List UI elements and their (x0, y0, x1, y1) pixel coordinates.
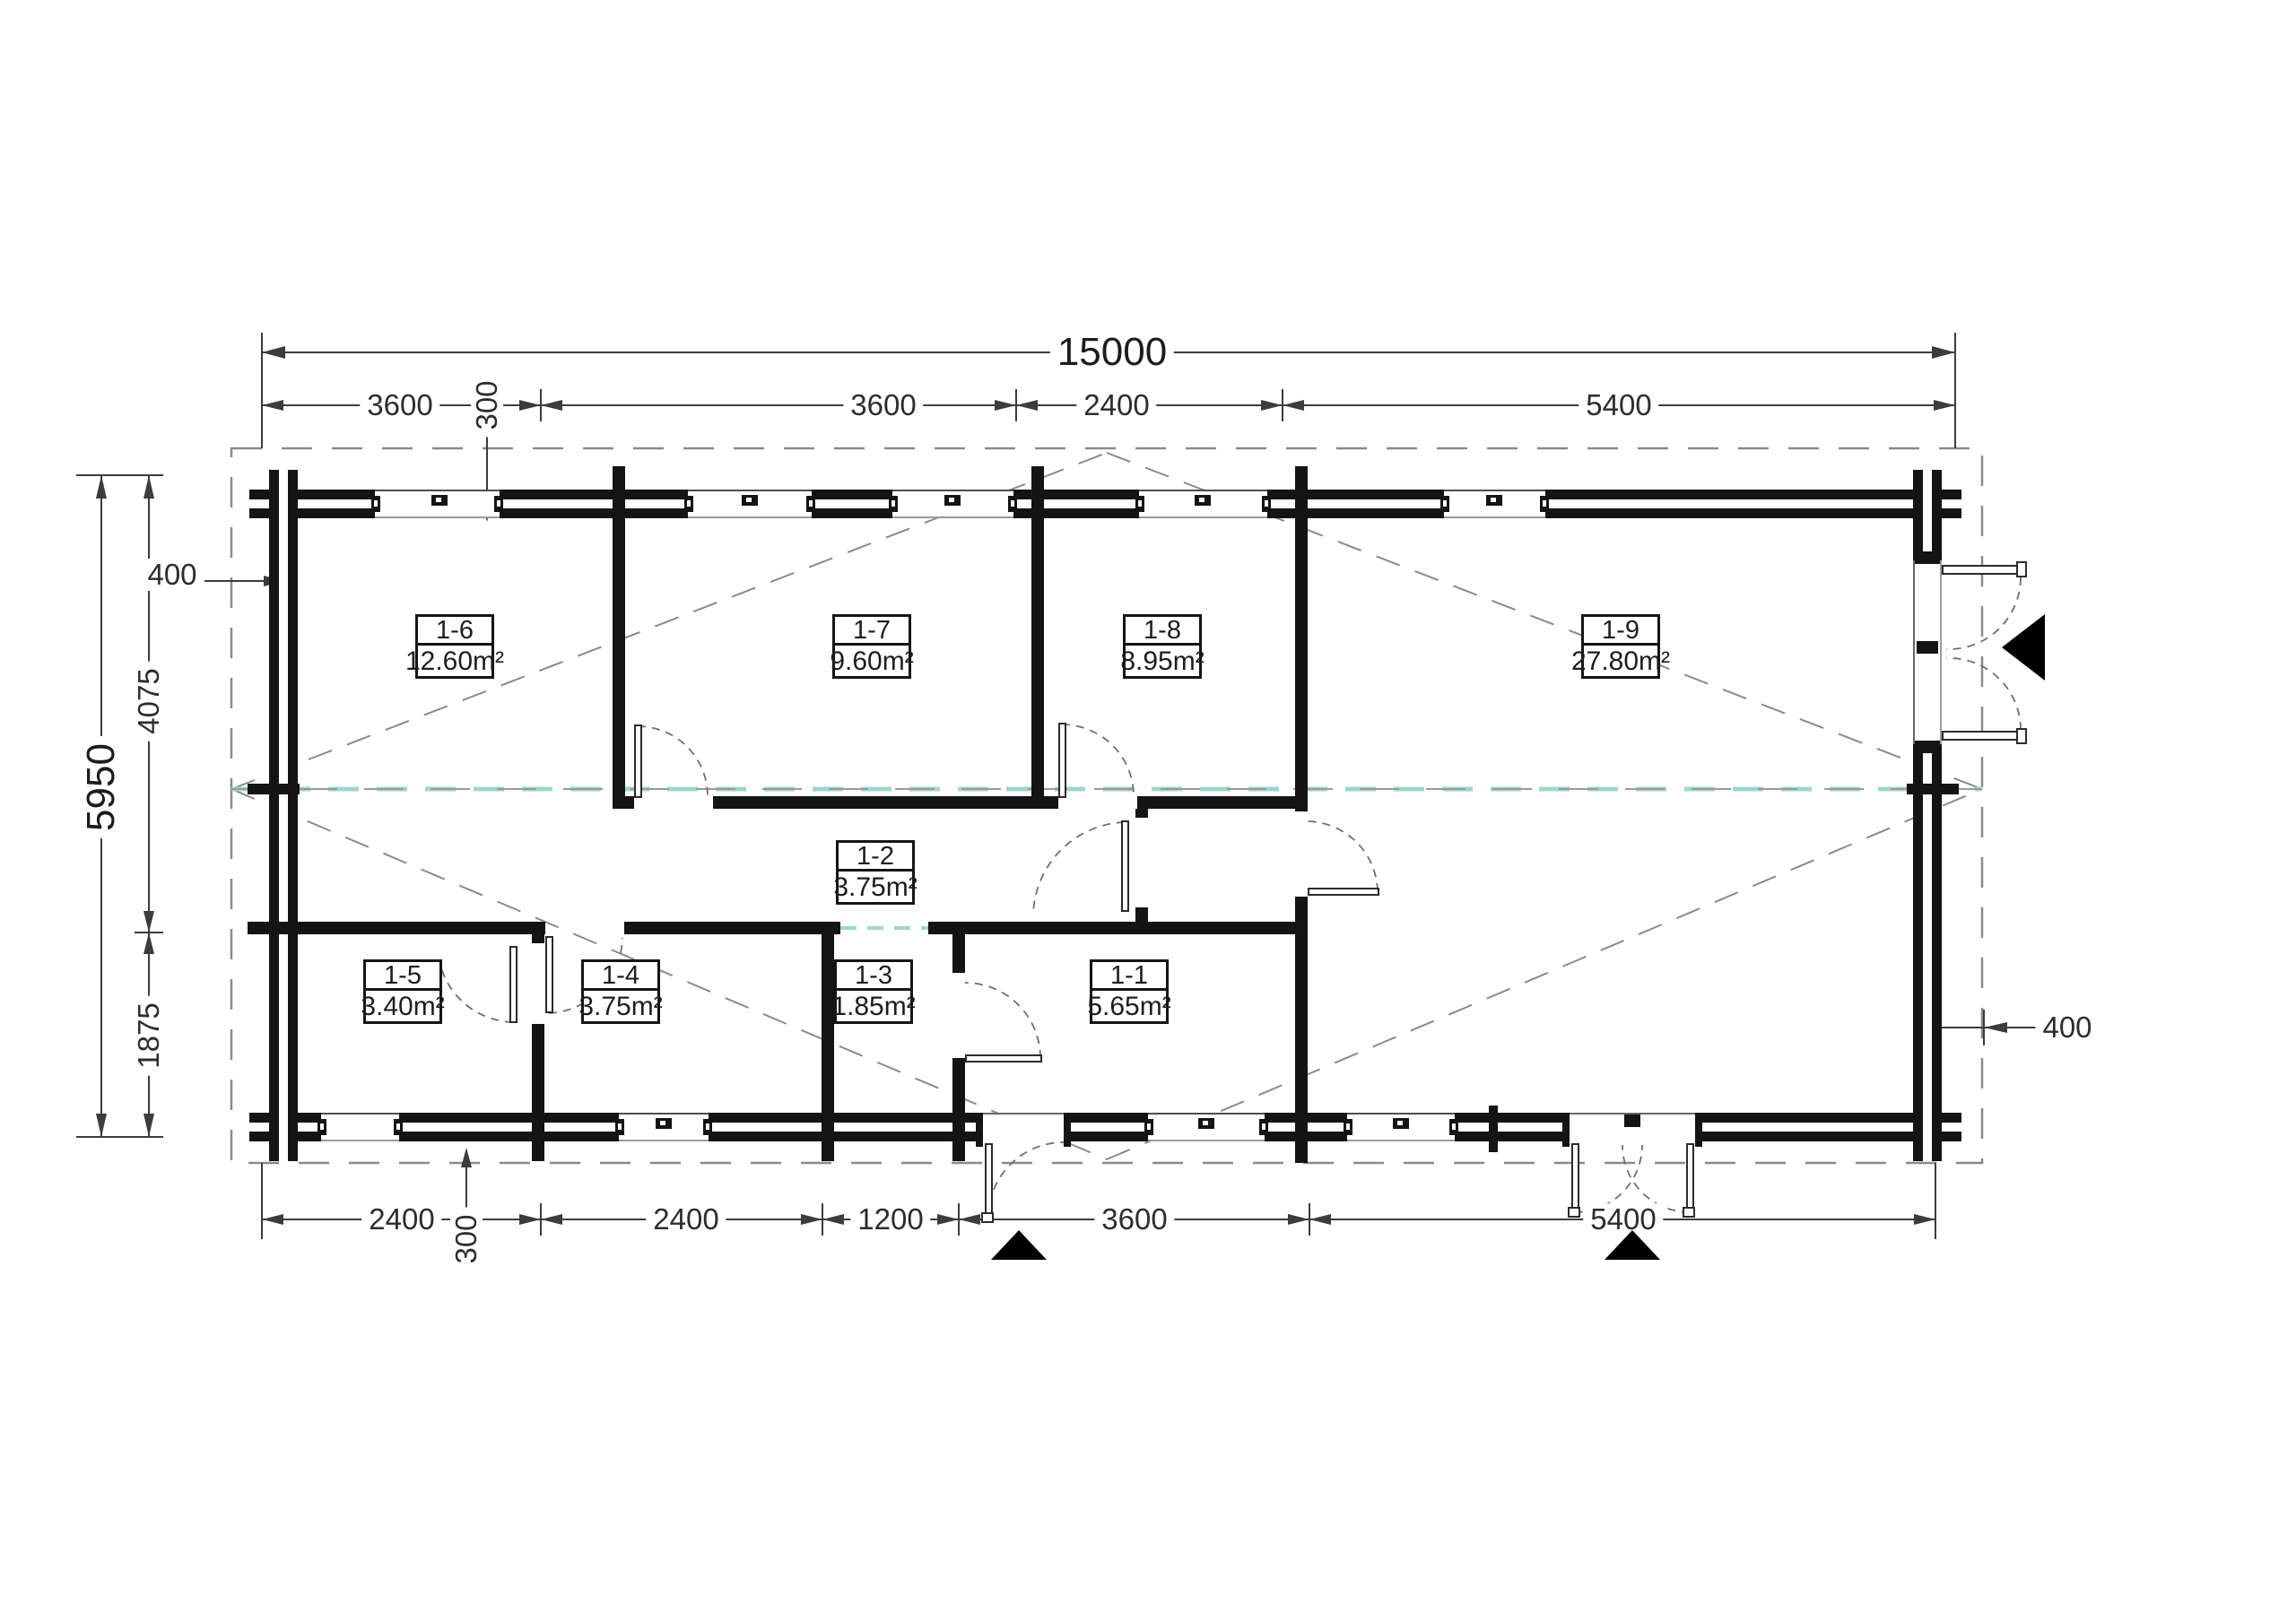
window (1347, 1113, 1455, 1141)
floor-plan-canvas: 1-6 12.60m² 1-7 9.60m² 1-8 8.95m² 1-9 27… (0, 0, 2296, 1622)
door-jamb (1562, 1113, 1570, 1147)
roof-overhang-outline (231, 448, 1982, 1163)
room-box-1-9: 1-9 27.80m² (1581, 614, 1660, 679)
door-leaf (509, 946, 517, 1023)
entrance-triangle-icon (2002, 614, 2045, 681)
log-stub (1907, 784, 1959, 794)
door-leaf (1942, 731, 2022, 741)
door-jamb (1915, 551, 1940, 564)
dim-left-1875: 1875 (133, 995, 165, 1075)
wall-mid-seg3 (1137, 796, 1308, 809)
window (1139, 490, 1267, 518)
room-id: 1-7 (835, 617, 909, 646)
dim-bottom-3600: 3600 (1094, 1203, 1174, 1236)
door-handle-icon (2016, 561, 2027, 577)
entrance-triangle-icon (1605, 1230, 1660, 1260)
room-id: 1-6 (418, 617, 491, 646)
door-handle-icon (1568, 1207, 1580, 1218)
dim-bottom-300: 300 (450, 1207, 483, 1271)
door-center-post (1624, 1115, 1640, 1127)
room-area: 3.40m² (366, 991, 439, 1021)
dim-top-3600-b: 3600 (843, 389, 923, 421)
exterior-wall-left (269, 470, 298, 1161)
window-mullion-icon (431, 495, 448, 506)
room-box-1-3: 1-3 1.85m² (834, 959, 913, 1024)
room-id: 1-1 (1092, 962, 1166, 991)
room-box-1-1: 1-1 5.65m² (1090, 959, 1169, 1024)
dim-bottom-2400-b: 2400 (646, 1203, 726, 1236)
window (619, 1113, 709, 1141)
dim-bottom-2400-a: 2400 (361, 1203, 441, 1236)
window (1444, 490, 1545, 518)
room-box-1-5: 1-5 3.40m² (363, 959, 442, 1024)
dim-left-4075: 4075 (133, 661, 165, 741)
log-stub (1295, 1109, 1308, 1163)
door-leaf (545, 936, 553, 1013)
wall-1-7-1-8 (1031, 517, 1044, 809)
log-stub (613, 466, 625, 518)
room-box-1-7: 1-7 9.60m² (832, 614, 911, 679)
dim-total-height: 5950 (81, 736, 122, 838)
dim-top-2400: 2400 (1076, 389, 1156, 421)
door-leaf (985, 1143, 993, 1219)
window (892, 490, 1013, 518)
log-stub (248, 922, 300, 934)
room-id: 1-4 (584, 962, 657, 991)
door-leaf (1571, 1143, 1579, 1213)
dim-top-5400: 5400 (1578, 389, 1658, 421)
room-area: 9.60m² (835, 646, 909, 676)
room-area: 8.95m² (1126, 646, 1199, 676)
door-jamb (1915, 741, 1940, 753)
door-jamb (1064, 1113, 1071, 1147)
roof-diagonal-lines (231, 453, 1982, 1159)
room-box-1-6: 1-6 12.60m² (415, 614, 494, 679)
window (688, 490, 812, 518)
plan-linework (0, 0, 2296, 1622)
wall-mid-seg1 (613, 796, 634, 809)
room-area: 5.65m² (1092, 991, 1166, 1021)
log-stub (248, 784, 300, 794)
room-id: 1-5 (366, 962, 439, 991)
door-leaf (634, 724, 642, 798)
window-frame-icon (494, 496, 503, 512)
wall-low-seg3 (928, 922, 1308, 934)
door-leaf (1942, 565, 2022, 575)
door-handle-icon (1683, 1207, 1695, 1218)
wall-1-2-right-lower (1135, 907, 1148, 922)
window (375, 490, 500, 518)
door-leaf (965, 1054, 1042, 1063)
door-handle-icon (2016, 728, 2027, 744)
dim-top-3600-a: 3600 (360, 389, 439, 421)
wall-1-5-1-4-lower (532, 1024, 544, 1113)
room-area: 3.75m² (584, 991, 657, 1021)
wall-mid-seg2 (713, 796, 1058, 809)
door-leaf (1308, 888, 1379, 896)
wall-1-8-1-9-upper (1295, 517, 1308, 811)
room-area: 3.75m² (839, 872, 912, 902)
door-jamb (976, 1113, 983, 1147)
log-stub (1031, 466, 1044, 518)
window-frame-icon (371, 496, 380, 512)
door-jamb (1695, 1113, 1702, 1147)
door-leaf (1121, 820, 1129, 912)
room-box-1-4: 1-4 3.75m² (581, 959, 660, 1024)
window (321, 1113, 399, 1141)
log-stub (1489, 1106, 1498, 1152)
room-id: 1-9 (1584, 617, 1657, 646)
door-center-post (1917, 641, 1938, 654)
room-id: 1-8 (1126, 617, 1199, 646)
room-id: 1-3 (837, 962, 910, 991)
wall-1-3-1-1-upper (952, 934, 965, 973)
log-stub (532, 1109, 544, 1161)
door-leaf (1686, 1143, 1694, 1213)
exterior-wall-top (249, 490, 1961, 518)
wall-1-3-1-1-lower (952, 1058, 965, 1113)
log-stub (1295, 466, 1308, 518)
wall-1-4-1-3 (822, 934, 834, 1113)
door-handle-icon (981, 1212, 994, 1223)
room-box-1-8: 1-8 8.95m² (1123, 614, 1202, 679)
log-stub (822, 1109, 834, 1161)
window (1148, 1113, 1265, 1141)
wall-1-6-1-7 (613, 517, 625, 809)
wall-1-2-right-upper (1135, 809, 1148, 818)
door-opening (983, 1113, 1064, 1141)
room-area: 27.80m² (1584, 646, 1657, 676)
room-area: 1.85m² (837, 991, 910, 1021)
exterior-wall-bottom (249, 1113, 1961, 1141)
door-leaf (1058, 723, 1066, 798)
wall-low-seg1 (269, 922, 545, 934)
dimension-lines (76, 333, 2038, 1239)
ridge-centerline (231, 789, 1982, 928)
dim-total-width: 15000 (1050, 332, 1174, 373)
wall-1-5-1-4-upper (532, 934, 544, 943)
dim-top-300: 300 (471, 373, 503, 437)
entrance-triangle-icon (991, 1230, 1047, 1260)
room-area: 12.60m² (418, 646, 491, 676)
dim-bottom-1200: 1200 (850, 1203, 930, 1236)
dim-right-400: 400 (2035, 1011, 2099, 1044)
log-stub (952, 1109, 965, 1161)
dimension-arrows (96, 346, 2007, 1225)
dim-left-400: 400 (140, 559, 204, 591)
room-id: 1-2 (839, 843, 912, 872)
room-box-1-2: 1-2 3.75m² (836, 840, 915, 905)
wall-low-seg2 (624, 922, 840, 934)
